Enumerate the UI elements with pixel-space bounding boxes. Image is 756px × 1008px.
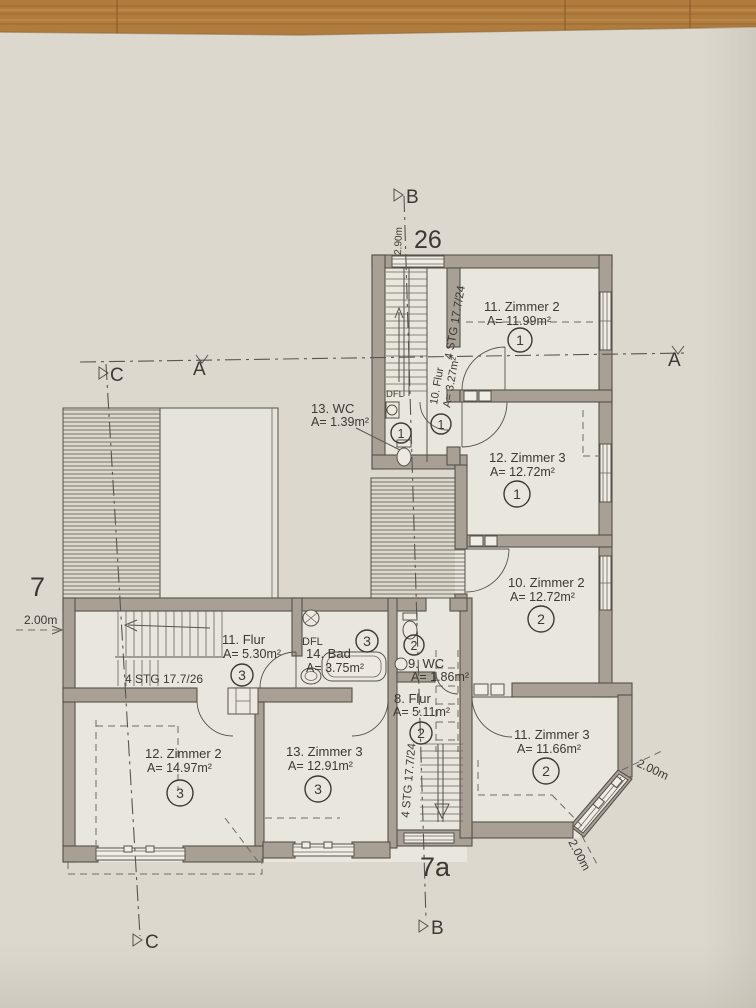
room-area: A= 11.99m² <box>487 314 551 328</box>
unit-number: 3 <box>238 667 246 683</box>
room-area: A= 12.72m² <box>490 465 555 479</box>
sink-wc9 <box>395 658 407 670</box>
house-number-7a: 7a <box>420 852 451 882</box>
window-room-12z3 <box>600 444 611 502</box>
room-name: 9. WC <box>408 656 444 671</box>
window-room-11z2 <box>600 292 611 350</box>
room-area: A= 5.11m² <box>393 705 450 719</box>
unit-number: 2 <box>417 725 425 741</box>
room-area: A= 3.75m² <box>306 661 364 675</box>
house-number-26: 26 <box>414 226 442 254</box>
toilet-wc13 <box>397 440 411 466</box>
unit-number: 2 <box>411 639 418 653</box>
window-top-stair <box>392 256 444 267</box>
house-number-7: 7 <box>30 572 45 602</box>
unit-number: 1 <box>513 486 521 502</box>
room-area: A= 14.97m² <box>147 761 212 775</box>
room-name: 10. Zimmer 2 <box>508 575 585 590</box>
dfl-label-top: DFL <box>386 389 404 400</box>
room-name: 12. Zimmer 3 <box>489 450 566 465</box>
window-room-10z2 <box>600 556 611 610</box>
section-marker-b-bottom: B <box>431 918 444 939</box>
floor-plan-svg: C A A B B C 7 26 7a 2.00m 2.90m 2.00m 2.… <box>0 0 756 1008</box>
section-marker-b-top: B <box>406 187 419 208</box>
chimney-symbol <box>228 688 258 714</box>
room-name: 12. Zimmer 2 <box>145 746 222 761</box>
room-name: 13. Zimmer 3 <box>286 744 363 759</box>
room-name: 8. Flur <box>394 691 432 706</box>
washbasin-bad <box>303 610 319 626</box>
room-area: A= 12.72m² <box>510 590 575 604</box>
unit-number: 1 <box>438 418 445 432</box>
room-area: A= 12.91m² <box>288 759 353 773</box>
unit-number: 2 <box>542 763 550 779</box>
window-bottom-12z2 <box>96 846 185 860</box>
room-area: A= 1.39m² <box>311 415 369 429</box>
unit-number: 1 <box>516 332 524 348</box>
room-name: 14. Bad <box>306 646 351 661</box>
unit-number: 1 <box>398 427 405 441</box>
photo-of-floor-plan: C A A B B C 7 26 7a 2.00m 2.90m 2.00m 2.… <box>0 0 756 1008</box>
window-bottom-13z3 <box>293 842 354 856</box>
stair-label-middle: 4 STG 17.7/26 <box>125 672 203 686</box>
section-marker-a-left: A <box>193 359 206 380</box>
unit-number: 3 <box>176 785 184 801</box>
dim-left-200: 2.00m <box>24 613 57 627</box>
unit-number: 3 <box>363 633 371 649</box>
washbasin-wc13 <box>386 402 399 418</box>
room-name: 11. Flur <box>222 632 266 647</box>
room-name: 11. Zimmer 3 <box>514 727 590 742</box>
window-bottom-entry <box>404 833 454 843</box>
unit-number: 3 <box>314 781 322 797</box>
room-area: A= 1.86m² <box>411 670 469 684</box>
room-name: 13. WC <box>311 401 354 416</box>
unit-number: 2 <box>537 611 545 627</box>
dim-top-290: 2.90m <box>393 227 405 255</box>
room-area: A= 11.66m² <box>517 742 581 756</box>
section-marker-c-bottom: C <box>145 932 159 953</box>
room-area: A= 5.30m² <box>223 647 281 661</box>
room-name: 11. Zimmer 2 <box>484 299 560 314</box>
section-marker-c-top: C <box>110 365 124 386</box>
